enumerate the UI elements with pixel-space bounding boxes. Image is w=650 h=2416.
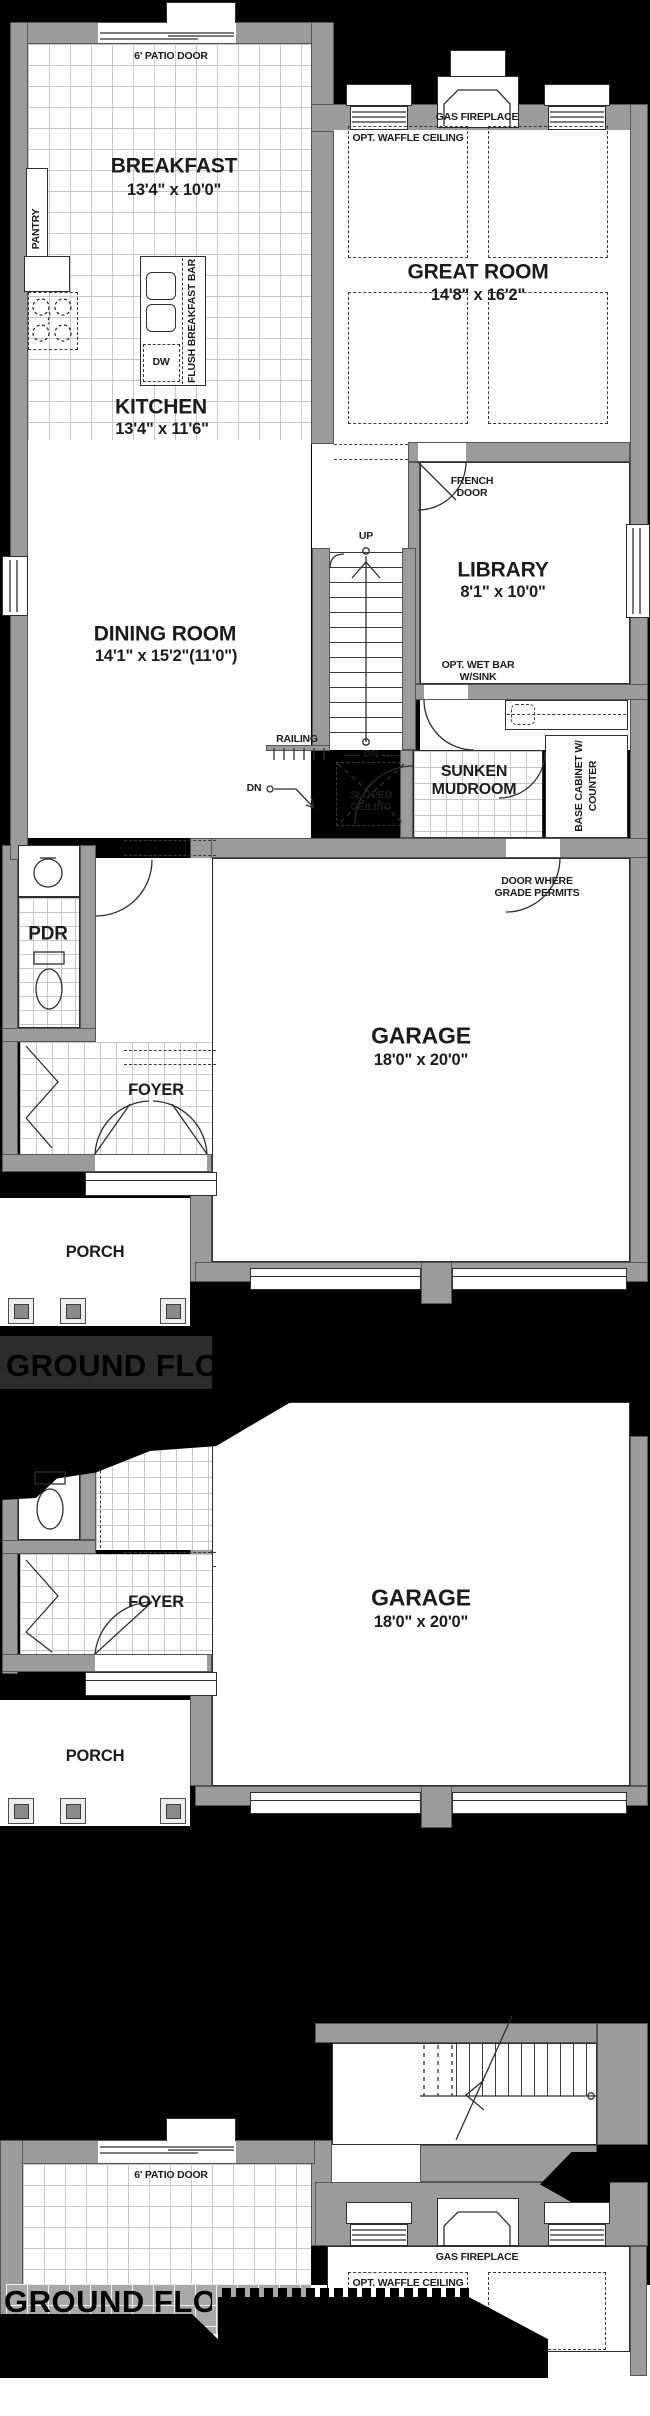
porch-label: PORCH bbox=[66, 1243, 125, 1261]
wall-segment bbox=[2, 845, 18, 1172]
pdr-sink-counter bbox=[18, 845, 80, 897]
opening-dash bbox=[124, 1050, 216, 1051]
porch-post bbox=[60, 1298, 86, 1324]
patio-door-bumpout bbox=[166, 2, 236, 24]
wall-segment bbox=[630, 1436, 648, 1786]
foyer-label: FOYER bbox=[128, 1593, 184, 1611]
railing-label: RAILING bbox=[276, 734, 318, 746]
kitchen-dims: 13'4" x 11'6" bbox=[115, 420, 208, 438]
breakfast-name: BREAKFAST bbox=[111, 154, 238, 177]
wall-segment bbox=[400, 750, 413, 838]
wall-segment bbox=[195, 838, 648, 858]
porch-post bbox=[8, 1798, 34, 1824]
opening-dash bbox=[124, 1552, 216, 1553]
french-door-opening bbox=[418, 443, 466, 461]
gas-fireplace-label: GAS FIREPLACE bbox=[436, 2252, 519, 2264]
garage-door-sill bbox=[452, 1268, 627, 1290]
pdr-label: PDR bbox=[28, 925, 68, 946]
wall-segment bbox=[311, 22, 334, 444]
stairs-dn-label: DN bbox=[247, 783, 262, 795]
wall-segment bbox=[315, 2023, 597, 2043]
base-cabinet-label: COUNTER bbox=[588, 761, 600, 812]
dining-room-name: DINING ROOM bbox=[94, 622, 236, 645]
great-room-window bbox=[350, 2224, 408, 2246]
fireplace-bumpout bbox=[450, 50, 506, 78]
porch-post bbox=[160, 1298, 186, 1324]
window-bumpout bbox=[346, 2202, 412, 2224]
wall-segment bbox=[2, 1540, 96, 1554]
wall-segment bbox=[312, 548, 330, 750]
entry-door-opening bbox=[95, 1155, 207, 1171]
grade-door-opening bbox=[506, 839, 560, 857]
french-door-label: DOOR bbox=[457, 488, 488, 500]
porch-post bbox=[8, 1298, 34, 1324]
patio-door-opening bbox=[98, 23, 236, 43]
foyer-label: FOYER bbox=[128, 1081, 184, 1099]
sink-basin bbox=[146, 272, 176, 300]
pantry-label: PANTRY bbox=[31, 209, 43, 250]
sloped-ceiling-label: SLOPED bbox=[350, 790, 392, 802]
garage-door-post bbox=[421, 1262, 452, 1304]
grade-door-label: GRADE PERMITS bbox=[495, 888, 580, 900]
entry-door-sill bbox=[85, 1172, 217, 1196]
patio-door-label: 6' PATIO DOOR bbox=[134, 2170, 208, 2182]
wall-segment bbox=[2, 1028, 96, 1042]
french-door-label: FRENCH bbox=[451, 476, 494, 488]
great-room-window bbox=[548, 2224, 606, 2246]
gas-fireplace-label: GAS FIREPLACE bbox=[436, 112, 519, 124]
island-divider bbox=[182, 258, 183, 384]
sloped-ceiling-label: CEILING bbox=[350, 802, 391, 814]
door-opening bbox=[424, 685, 468, 699]
waffle-ceiling-box bbox=[488, 292, 608, 424]
mudroom-name: SUNKEN bbox=[441, 763, 507, 781]
wall-segment bbox=[597, 2023, 648, 2145]
library-name: LIBRARY bbox=[457, 558, 548, 581]
opening-dash bbox=[124, 1064, 216, 1065]
garage-name: GARAGE bbox=[371, 1585, 471, 1610]
porch-post bbox=[60, 1798, 86, 1824]
library-window bbox=[626, 524, 650, 618]
obscured-floor-title: GROUND FLOOR bbox=[6, 1348, 212, 1384]
dn-dash bbox=[344, 755, 360, 756]
dn-dash bbox=[382, 755, 398, 756]
wall-segment bbox=[630, 2246, 647, 2376]
stairs-up-label: UP bbox=[359, 531, 373, 543]
window-bumpout bbox=[544, 2202, 610, 2224]
waffle-ceiling-box bbox=[488, 126, 608, 258]
patio-door-label: 6' PATIO DOOR bbox=[134, 51, 208, 63]
gas-fireplace-box bbox=[437, 2198, 519, 2246]
waffle-ceiling-label: OPT. WAFFLE CEILING bbox=[352, 133, 463, 145]
opening-dash bbox=[334, 459, 408, 460]
garage-door-sill bbox=[250, 1792, 421, 1814]
window-bumpout bbox=[544, 84, 610, 106]
dining-window bbox=[2, 556, 28, 616]
breakfast-bar-label: FLUSH BREAKFAST BAR bbox=[187, 259, 199, 383]
garage-dims: 18'0" x 20'0" bbox=[374, 1613, 468, 1631]
entry-door-sill bbox=[85, 1672, 217, 1696]
garage-door-sill bbox=[452, 1792, 627, 1814]
porch-label: PORCH bbox=[66, 1747, 125, 1765]
stairs-treads bbox=[456, 2044, 596, 2096]
wet-bar-label: W/SINK bbox=[460, 672, 497, 684]
sink-basin bbox=[146, 304, 176, 332]
pdr-floor bbox=[18, 897, 80, 1028]
wet-bar-label: OPT. WET BAR bbox=[442, 660, 515, 672]
mudroom-name: MUDROOM bbox=[432, 781, 517, 799]
glitch-panel: GROUND FLOOR bbox=[0, 1336, 212, 1389]
hall-floor bbox=[332, 2145, 420, 2182]
wall-segment bbox=[402, 548, 416, 750]
opening-dash bbox=[124, 855, 216, 856]
garage-dims: 18'0" x 20'0" bbox=[374, 1051, 468, 1069]
kitchen-counter bbox=[24, 256, 70, 292]
wetbar-sink bbox=[511, 704, 535, 725]
garage-door-post bbox=[421, 1786, 452, 1828]
stove bbox=[28, 292, 78, 350]
grade-door-label: DOOR WHERE bbox=[501, 876, 573, 888]
waffle-ceiling-box bbox=[348, 126, 468, 258]
wall-segment bbox=[10, 22, 28, 860]
library-dims: 8'1" x 10'0" bbox=[460, 583, 545, 601]
breakfast-dims: 13'4" x 10'0" bbox=[127, 181, 221, 199]
great-room-dims: 14'8" x 16'2" bbox=[431, 286, 525, 304]
waffle-ceiling-label: OPT. WAFFLE CEILING bbox=[352, 2278, 463, 2290]
dishwasher-label: DW bbox=[152, 357, 169, 369]
glitch-blob bbox=[0, 2314, 192, 2378]
breakfast-floor bbox=[23, 2164, 311, 2284]
kitchen-name: KITCHEN bbox=[115, 395, 207, 418]
stairs-up-treads bbox=[330, 552, 402, 744]
opening-dash bbox=[124, 840, 216, 841]
garage-name: GARAGE bbox=[371, 1023, 471, 1048]
patio-door-bumpout bbox=[166, 2118, 236, 2142]
patio-door-opening bbox=[98, 2141, 236, 2163]
floor-plan-screenshot: GROUND FLOOR GROUND FLOOR bbox=[0, 0, 650, 2416]
wall-segment bbox=[80, 845, 96, 1042]
window-bumpout bbox=[346, 84, 412, 106]
great-room-name: GREAT ROOM bbox=[407, 260, 548, 283]
railing-bar bbox=[266, 745, 330, 751]
waffle-ceiling-box bbox=[348, 292, 468, 424]
stairs-dn-label: DN bbox=[364, 749, 379, 761]
porch-post bbox=[160, 1798, 186, 1824]
hall-floor bbox=[96, 858, 212, 1050]
garage-door-sill bbox=[250, 1268, 421, 1290]
entry-door-opening bbox=[95, 1655, 207, 1671]
opening-dash bbox=[334, 444, 408, 445]
dining-room-dims: 14'1" x 15'2"(11'0") bbox=[95, 647, 237, 665]
base-cabinet-label: BASE CABINET W/ bbox=[574, 740, 586, 832]
